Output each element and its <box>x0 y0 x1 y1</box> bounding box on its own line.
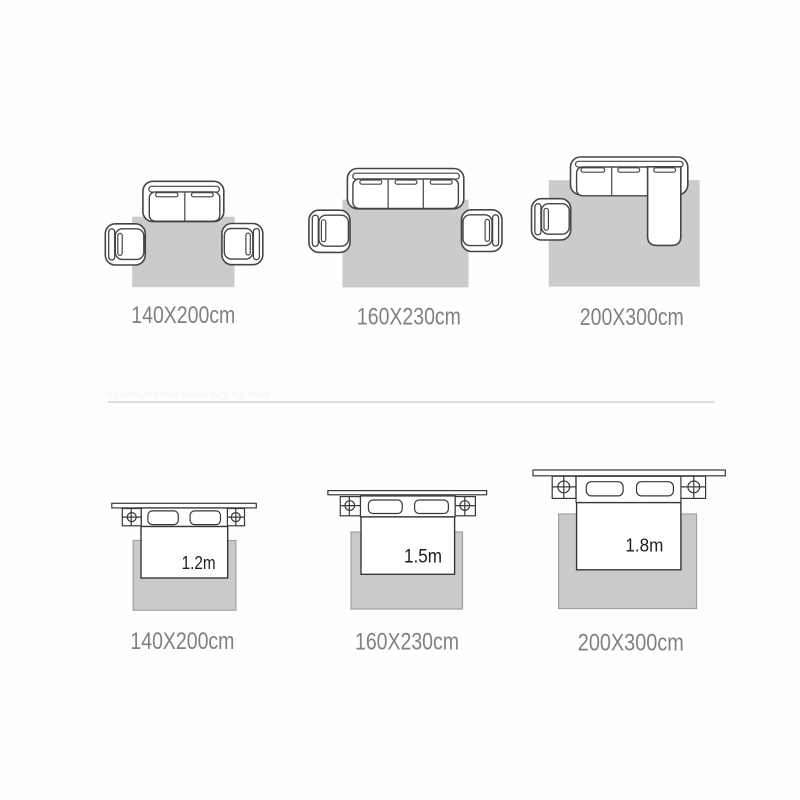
svg-text:140X200cm: 140X200cm <box>131 302 235 329</box>
svg-text:200X300cm: 200X300cm <box>578 629 684 656</box>
svg-text:mydethun home textile flagship: mydethun home textile flagship store <box>107 390 270 401</box>
svg-text:160X230cm: 160X230cm <box>357 304 461 331</box>
svg-text:1.8m: 1.8m <box>625 534 663 555</box>
svg-text:200X300cm: 200X300cm <box>580 304 684 331</box>
svg-text:1.5m: 1.5m <box>404 546 442 568</box>
svg-text:160X230cm: 160X230cm <box>355 629 459 656</box>
svg-text:140X200cm: 140X200cm <box>130 628 234 655</box>
svg-text:1.2m: 1.2m <box>182 552 216 573</box>
